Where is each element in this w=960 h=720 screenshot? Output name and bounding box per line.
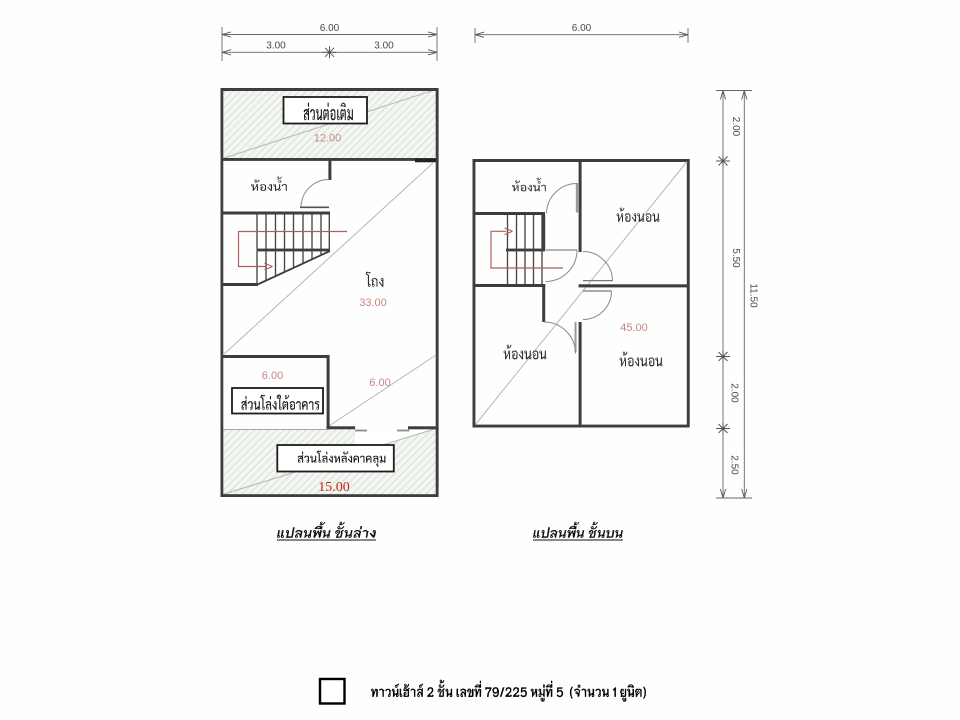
svg-text:2.00: 2.00 [730,117,741,137]
svg-text:6.00: 6.00 [262,370,283,382]
svg-text:2.50: 2.50 [729,455,740,475]
svg-text:2.00: 2.00 [729,383,740,403]
svg-text:45.00: 45.00 [620,322,648,334]
svg-text:11.50: 11.50 [748,283,759,308]
svg-text:6.00: 6.00 [572,23,592,34]
svg-text:3.00: 3.00 [266,41,286,52]
svg-text:5.50: 5.50 [730,248,741,268]
svg-text:3.00: 3.00 [374,41,394,52]
svg-text:15.00: 15.00 [318,480,350,495]
svg-text:12.00: 12.00 [314,133,342,145]
svg-text:6.00: 6.00 [320,23,340,34]
svg-text:33.00: 33.00 [359,297,387,309]
svg-text:6.00: 6.00 [369,377,390,389]
